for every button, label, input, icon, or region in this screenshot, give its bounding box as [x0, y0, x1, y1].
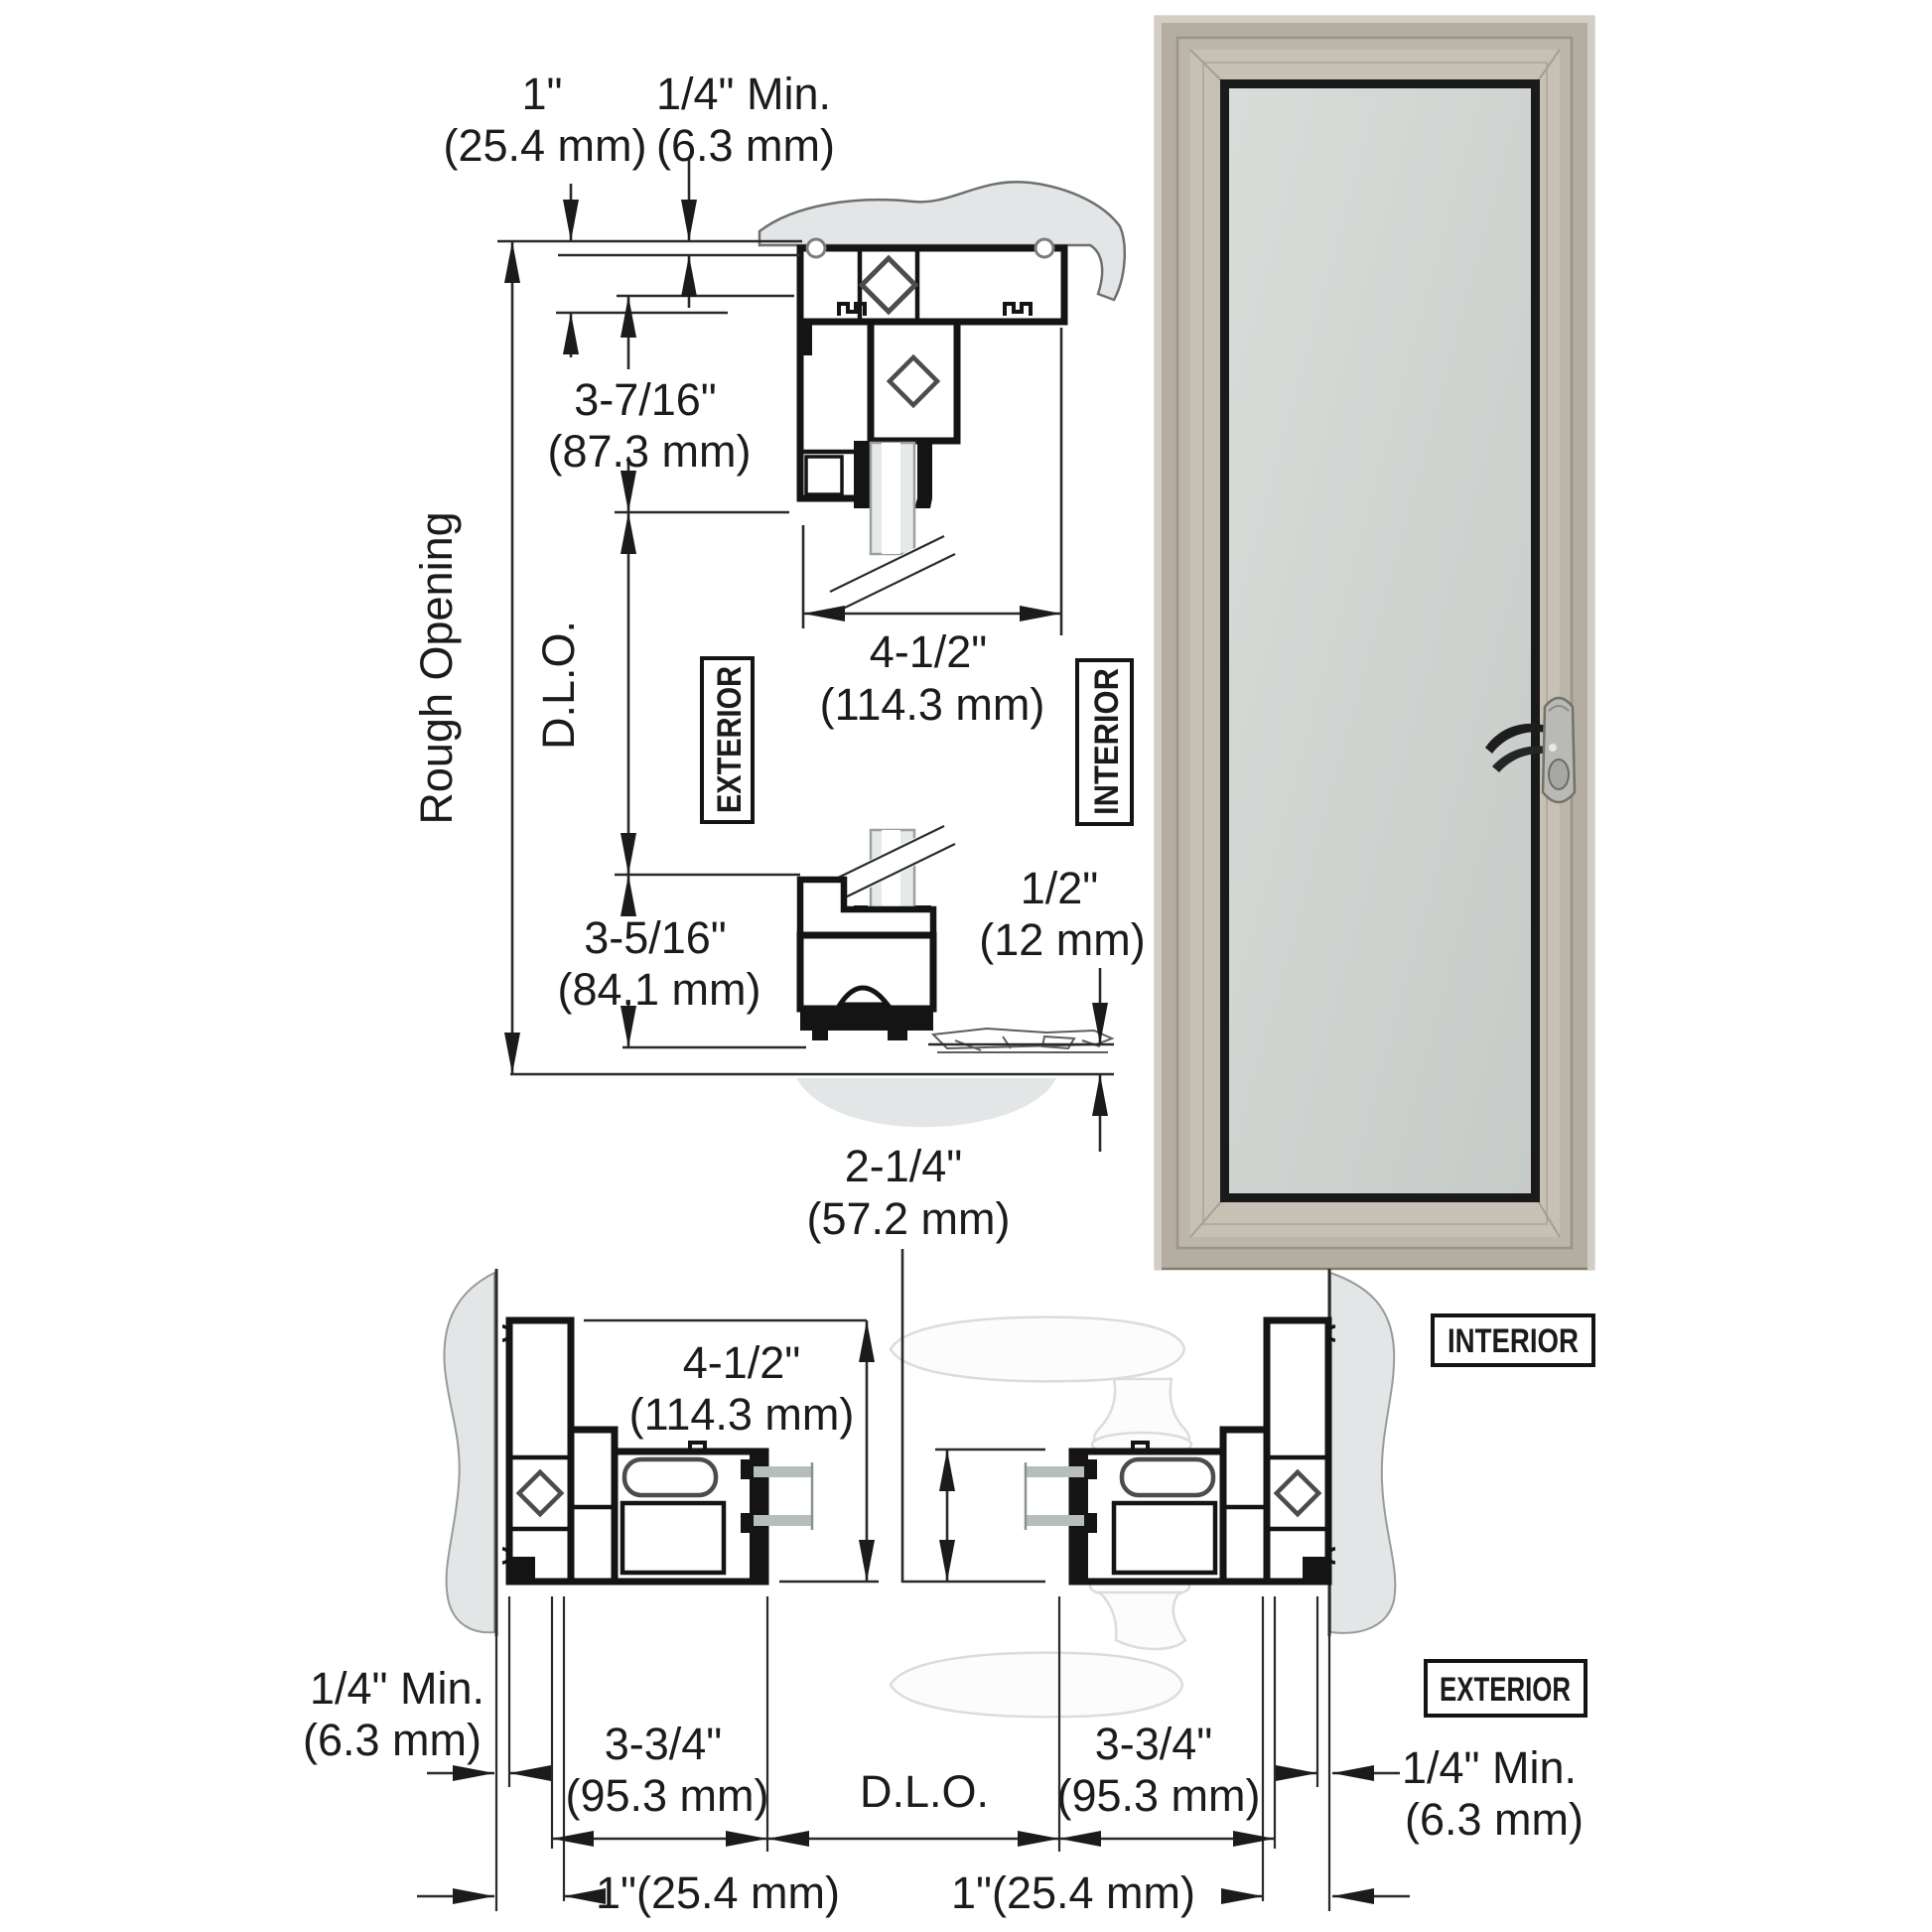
svg-text:INTERIOR: INTERIOR: [1088, 668, 1126, 815]
svg-text:1/4" Min.: 1/4" Min.: [656, 69, 831, 119]
svg-text:(95.3 mm): (95.3 mm): [565, 1770, 768, 1821]
svg-text:3-5/16": 3-5/16": [584, 912, 727, 963]
svg-text:4-1/2": 4-1/2": [683, 1337, 801, 1388]
svg-text:2-1/4": 2-1/4": [845, 1141, 963, 1191]
svg-text:(12 mm): (12 mm): [979, 914, 1146, 965]
svg-text:1"(25.4 mm): 1"(25.4 mm): [596, 1867, 840, 1918]
svg-text:3-3/4": 3-3/4": [605, 1719, 723, 1769]
svg-text:1/2": 1/2": [1021, 863, 1099, 913]
svg-text:D.L.O.: D.L.O.: [533, 621, 584, 750]
svg-text:1"(25.4 mm): 1"(25.4 mm): [951, 1867, 1195, 1918]
svg-text:3-7/16": 3-7/16": [574, 374, 717, 425]
svg-text:(87.3 mm): (87.3 mm): [547, 426, 751, 477]
svg-text:(57.2 mm): (57.2 mm): [806, 1193, 1010, 1244]
svg-text:D.L.O.: D.L.O.: [860, 1766, 989, 1817]
svg-text:(114.3 mm): (114.3 mm): [820, 679, 1045, 730]
svg-text:(84.1 mm): (84.1 mm): [557, 964, 760, 1015]
svg-text:1": 1": [521, 69, 562, 119]
svg-text:4-1/2": 4-1/2": [870, 626, 988, 677]
svg-text:(114.3 mm): (114.3 mm): [629, 1389, 855, 1440]
svg-text:(6.3 mm): (6.3 mm): [656, 120, 835, 171]
svg-text:3-3/4": 3-3/4": [1095, 1719, 1213, 1769]
svg-text:EXTERIOR: EXTERIOR: [1440, 1671, 1571, 1709]
svg-text:(6.3 mm): (6.3 mm): [303, 1715, 482, 1765]
svg-text:Rough Opening: Rough Opening: [411, 511, 462, 824]
svg-text:(95.3 mm): (95.3 mm): [1056, 1770, 1260, 1821]
svg-text:1/4" Min.: 1/4" Min.: [310, 1663, 484, 1714]
svg-text:(25.4 mm): (25.4 mm): [443, 120, 646, 171]
svg-text:1/4" Min.: 1/4" Min.: [1402, 1742, 1577, 1793]
svg-text:INTERIOR: INTERIOR: [1448, 1322, 1579, 1360]
svg-text:(6.3 mm): (6.3 mm): [1405, 1794, 1584, 1845]
svg-text:EXTERIOR: EXTERIOR: [711, 666, 749, 813]
